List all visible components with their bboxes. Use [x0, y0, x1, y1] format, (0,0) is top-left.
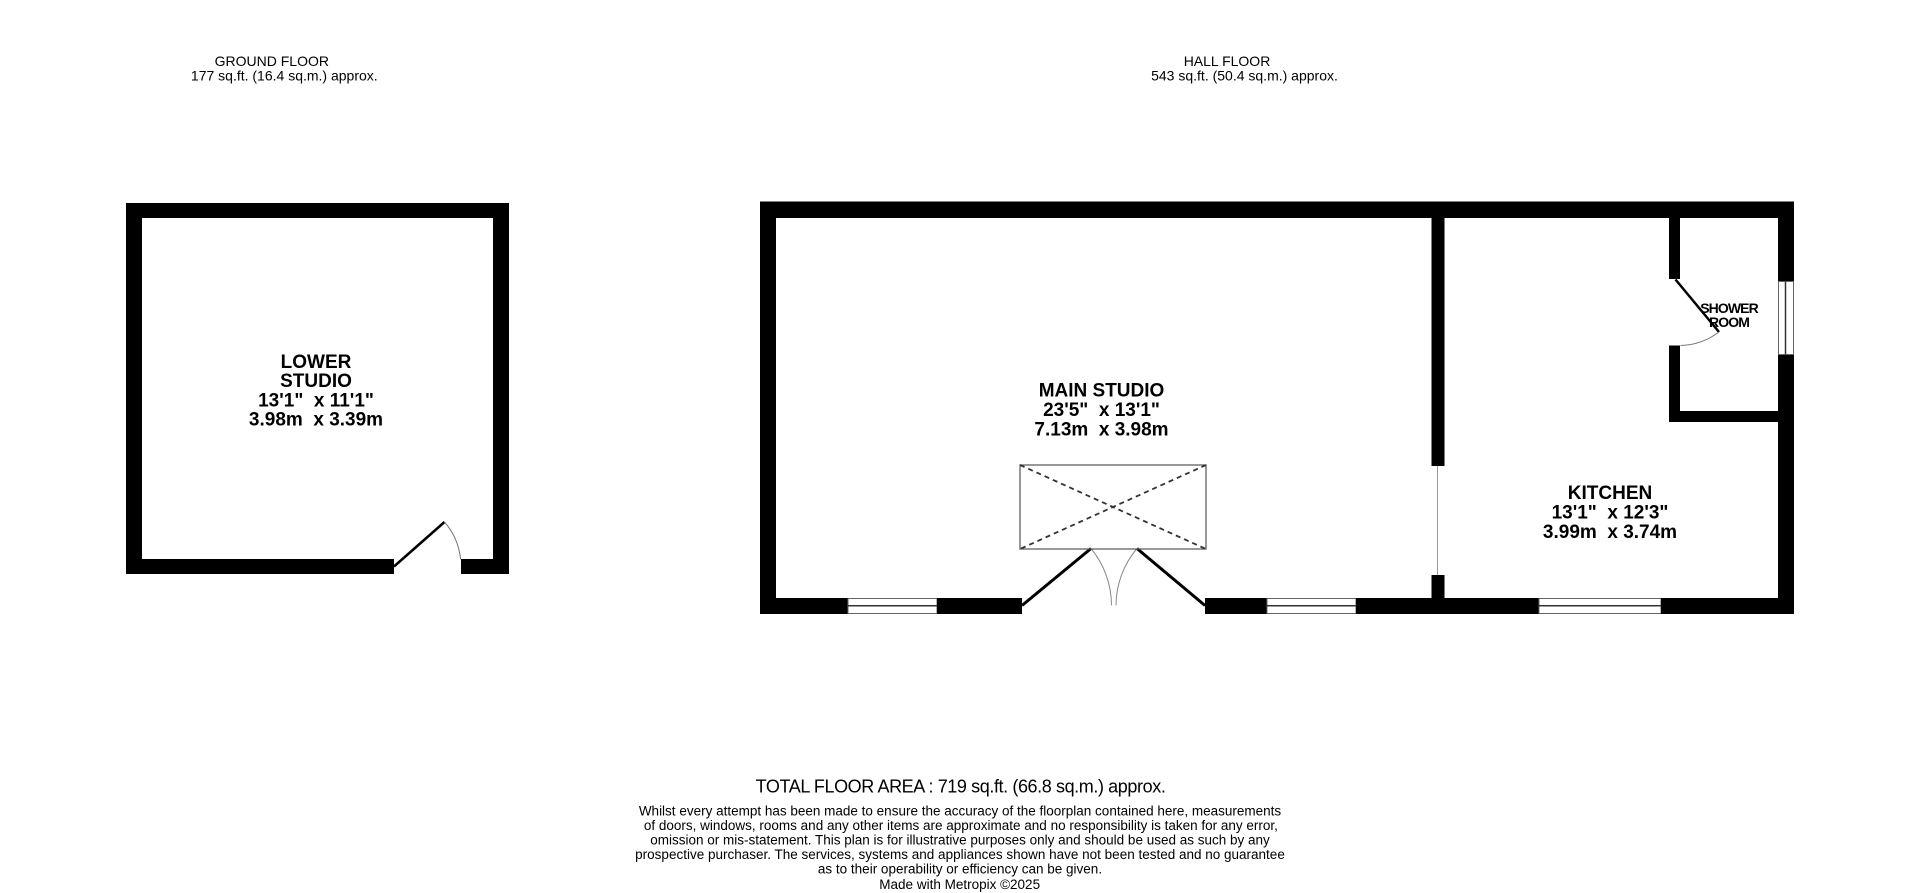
- svg-text:KITCHEN: KITCHEN: [1568, 483, 1652, 504]
- svg-text:3.99m x 3.74m: 3.99m x 3.74m: [1543, 522, 1677, 543]
- svg-text:13'1" x 12'3": 13'1" x 12'3": [1552, 503, 1669, 524]
- svg-text:7.13m x 3.98m: 7.13m x 3.98m: [1034, 420, 1168, 441]
- svg-text:23'5" x 13'1": 23'5" x 13'1": [1043, 400, 1160, 421]
- svg-text:13'1" x 11'1": 13'1" x 11'1": [258, 390, 374, 411]
- svg-text:3.98m x 3.39m: 3.98m x 3.39m: [249, 410, 383, 431]
- svg-text:MAIN STUDIO: MAIN STUDIO: [1039, 381, 1165, 402]
- svg-text:ROOM: ROOM: [1709, 314, 1749, 330]
- svg-text:543 sq.ft. (50.4 sq.m.) approx: 543 sq.ft. (50.4 sq.m.) approx.: [1151, 68, 1338, 84]
- svg-text:Made with Metropix ©2025: Made with Metropix ©2025: [879, 877, 1040, 892]
- svg-text:prospective purchaser. The ser: prospective purchaser. The services, sys…: [635, 847, 1285, 862]
- svg-text:177 sq.ft. (16.4 sq.m.) approx: 177 sq.ft. (16.4 sq.m.) approx.: [191, 68, 378, 84]
- svg-text:as to their operability or eff: as to their operability or efficiency ca…: [818, 862, 1102, 877]
- svg-text:Whilst every attempt has been: Whilst every attempt has been made to en…: [639, 803, 1282, 818]
- svg-text:of doors, windows, rooms and a: of doors, windows, rooms and any other i…: [644, 818, 1278, 833]
- svg-text:TOTAL FLOOR AREA : 719 sq.ft.: TOTAL FLOOR AREA : 719 sq.ft. (66.8 sq.m…: [756, 777, 1166, 797]
- svg-text:STUDIO: STUDIO: [280, 371, 352, 392]
- svg-text:omission or mis-statement. Thi: omission or mis-statement. This plan is …: [650, 832, 1270, 847]
- svg-text:LOWER: LOWER: [281, 352, 352, 373]
